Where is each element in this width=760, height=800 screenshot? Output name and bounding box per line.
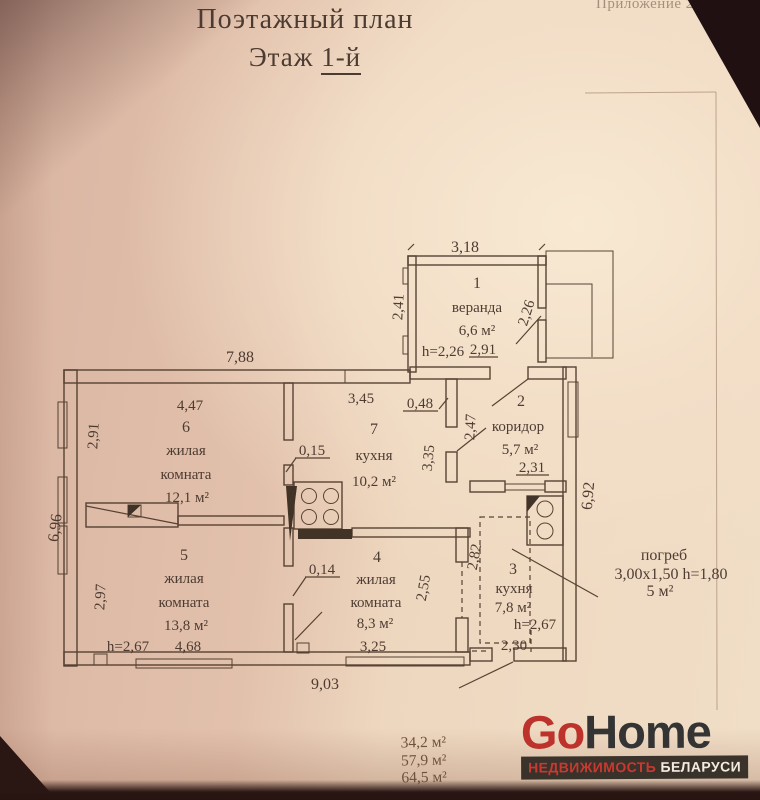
room-5-label: 5 жилая комната 13,8 м² h=2,67 4,68 [107, 547, 210, 655]
kitchen3-area: 7,8 м² [495, 600, 532, 616]
logo-go: Go [521, 705, 585, 758]
dim-room5-bottom: 4,68 [175, 639, 201, 655]
dim-house-right: 6,92 [579, 481, 598, 510]
dim-room6-top: 4,47 [177, 398, 204, 414]
dim-corridor-bottom: 2,31 [519, 460, 545, 476]
kitchen3-name: кухня [495, 581, 532, 597]
cellar-name: погреб [641, 547, 687, 564]
room5-name-2: комната [159, 595, 210, 611]
gohome-logo-text: GoHome [521, 707, 748, 755]
room5-number: 5 [180, 547, 188, 564]
dim-corridor-top: 2,91 [470, 342, 496, 358]
dim-partition-lower: 0,14 [309, 562, 336, 578]
dim-veranda-left: 2,41 [390, 293, 407, 320]
room-6-label: 6 жилая комната 12,1 м² [161, 419, 212, 506]
logo-home: Home [584, 705, 711, 759]
room6-name-2: комната [161, 467, 212, 483]
dim-kitchen7-jamb: 0,48 [407, 396, 433, 412]
room4-name-2: комната [351, 595, 402, 611]
veranda-number: 1 [473, 275, 481, 292]
page-edge-lines [585, 92, 717, 710]
kitchen3-height: h=2,67 [514, 617, 557, 633]
room4-number: 4 [373, 549, 381, 566]
veranda-height: h=2,26 [422, 344, 465, 360]
dim-house-top: 7,88 [226, 349, 254, 366]
dim-kitchen7-top: 3,45 [348, 391, 374, 407]
dim-room5-left: 2,97 [92, 583, 109, 611]
dim-corridor-left: 2,47 [462, 413, 479, 441]
dim-house-left: 6,96 [45, 513, 65, 543]
photo-of-floor-plan: { "document": { "annotation": "Приложени… [0, 0, 760, 800]
room4-area: 8,3 м² [357, 616, 394, 632]
dim-room6-left: 2,91 [85, 422, 102, 449]
room6-number: 6 [182, 419, 190, 436]
kitchen7-number: 7 [370, 421, 378, 438]
kitchen3-number: 3 [509, 561, 517, 578]
tagline-red: НЕДВИЖИМОСТЬ [528, 759, 656, 776]
dim-room4-bottom: 3,25 [360, 639, 386, 655]
kitchen7-name: кухня [355, 448, 392, 464]
stove-kitchen3 [527, 496, 563, 545]
gohome-watermark: GoHome НЕДВИЖИМОСТЬ БЕЛАРУСИ [521, 707, 748, 779]
porch-steps [546, 251, 613, 358]
area-totals: 34,2 м² 57,9 м² 64,5 м² [400, 734, 447, 787]
corridor-area: 5,7 м² [502, 442, 539, 458]
total-line-2: 57,9 м² [401, 751, 447, 769]
tagline-white: БЕЛАРУСИ [656, 758, 741, 774]
dim-partition-upper: 0,15 [299, 443, 325, 459]
cellar-size: 3,00х1,50 h=1,80 [614, 566, 727, 583]
room-kitchen7-label: 7 кухня 10,2 м² [352, 421, 396, 490]
dim-room4-right: 2,55 [414, 574, 434, 603]
room-4-label: 4 жилая комната 8,3 м² 3,25 [351, 549, 402, 655]
floor-plan-drawing: 1 веранда 6,6 м² h=2,26 2 коридор 5,7 м²… [0, 0, 760, 800]
dim-house-bottom: 9,03 [311, 676, 339, 693]
dim-veranda-door: 2,26 [515, 298, 538, 328]
room5-name-1: жилая [163, 571, 204, 587]
room-corridor-label: 2 коридор 5,7 м² [492, 393, 544, 458]
dim-kitchen7-right: 3,35 [420, 444, 439, 472]
cellar-label: погреб 3,00х1,50 h=1,80 5 м² [614, 547, 727, 600]
dim-veranda-width: 3,18 [451, 239, 479, 256]
room6-area: 12,1 м² [165, 490, 209, 506]
room4-name-1: жилая [355, 572, 396, 588]
dim-kitchen3-bottom: 2,30 [501, 638, 527, 654]
gohome-tagline-banner: НЕДВИЖИМОСТЬ БЕЛАРУСИ [521, 755, 748, 779]
corridor-name: коридор [492, 419, 544, 435]
cellar-area: 5 м² [647, 583, 674, 600]
dim-kitchen3-left: 2,82 [465, 543, 485, 572]
stove-kitchen7 [286, 482, 352, 541]
room5-area: 13,8 м² [164, 618, 208, 634]
veranda-area: 6,6 м² [459, 323, 496, 339]
room5-height: h=2,67 [107, 639, 150, 655]
room-kitchen3-label: 3 кухня 7,8 м² h=2,67 2,30 [495, 561, 557, 654]
veranda-name: веранда [452, 300, 502, 316]
kitchen7-area: 10,2 м² [352, 474, 396, 490]
total-line-1: 34,2 м² [400, 734, 446, 752]
room6-name-1: жилая [165, 443, 206, 459]
total-line-3: 64,5 м² [401, 769, 447, 787]
corridor-number: 2 [517, 393, 525, 410]
